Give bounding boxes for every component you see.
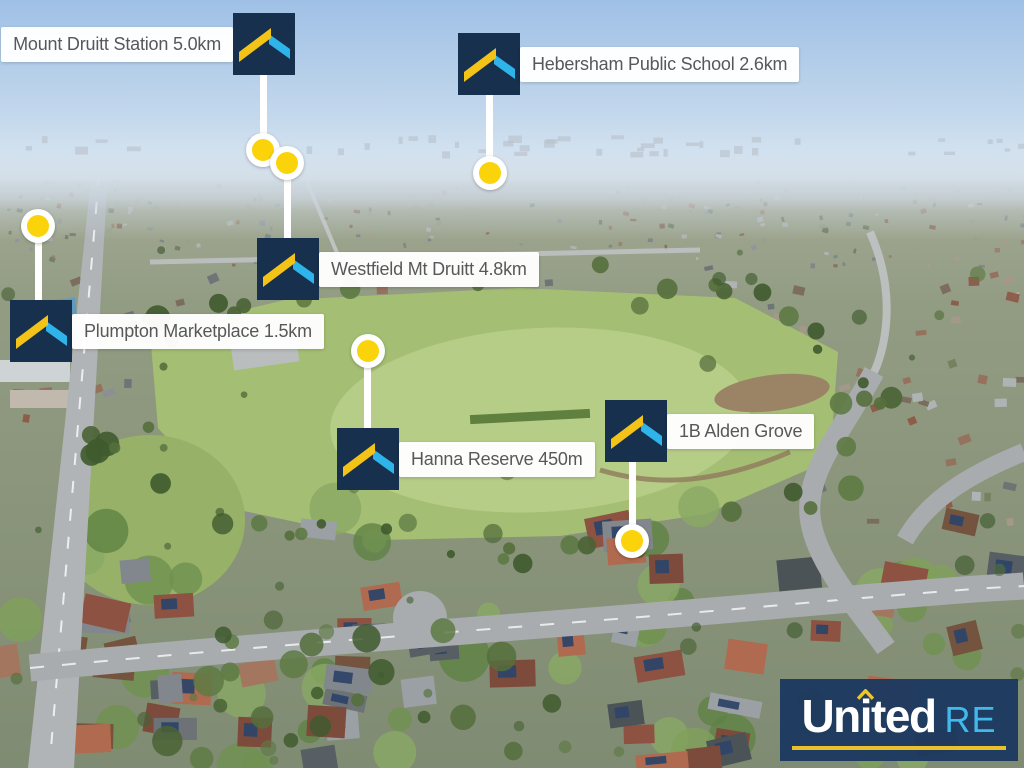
aerial-photo-background bbox=[0, 0, 1024, 768]
roof-chevron-logo-icon bbox=[605, 400, 667, 462]
pin-dot-icon bbox=[473, 156, 507, 190]
poi-label: Hanna Reserve 450m bbox=[399, 442, 595, 477]
poi-label: Hebersham Public School 2.6km bbox=[520, 47, 799, 82]
brand-underline-icon bbox=[792, 746, 1006, 750]
pin-dot-icon bbox=[351, 334, 385, 368]
unitedre-watermark: United RE bbox=[780, 679, 1018, 761]
roof-chevron-logo-icon bbox=[337, 428, 399, 490]
roof-chevron-logo-icon bbox=[10, 300, 72, 362]
brand-wordmark: United RE bbox=[801, 693, 996, 739]
pin-dot-icon bbox=[270, 146, 304, 180]
roof-chevron-logo-icon bbox=[257, 238, 319, 300]
poi-label: Westfield Mt Druitt 4.8km bbox=[319, 252, 539, 287]
aerial-marketing-image: Mount Druitt Station 5.0km Hebersham Pub… bbox=[0, 0, 1024, 768]
roof-caret-icon bbox=[857, 689, 874, 700]
brand-suffix: RE bbox=[945, 702, 997, 738]
pin-dot-icon bbox=[21, 209, 55, 243]
poi-label: 1B Alden Grove bbox=[667, 414, 814, 449]
marker-subject-property: 1B Alden Grove bbox=[605, 400, 814, 462]
marker-plumpton-marketplace: Plumpton Marketplace 1.5km bbox=[10, 300, 324, 362]
marker-hebersham-public-school: Hebersham Public School 2.6km bbox=[458, 33, 799, 95]
marker-hanna-reserve: Hanna Reserve 450m bbox=[337, 428, 595, 490]
marker-westfield-mt-druitt: Westfield Mt Druitt 4.8km bbox=[257, 238, 539, 300]
pin-dot-icon bbox=[615, 524, 649, 558]
roof-chevron-logo-icon bbox=[233, 13, 295, 75]
poi-label: Plumpton Marketplace 1.5km bbox=[72, 314, 324, 349]
roof-chevron-logo-icon bbox=[458, 33, 520, 95]
poi-label: Mount Druitt Station 5.0km bbox=[1, 27, 233, 62]
marker-mount-druitt-station: Mount Druitt Station 5.0km bbox=[1, 13, 295, 75]
